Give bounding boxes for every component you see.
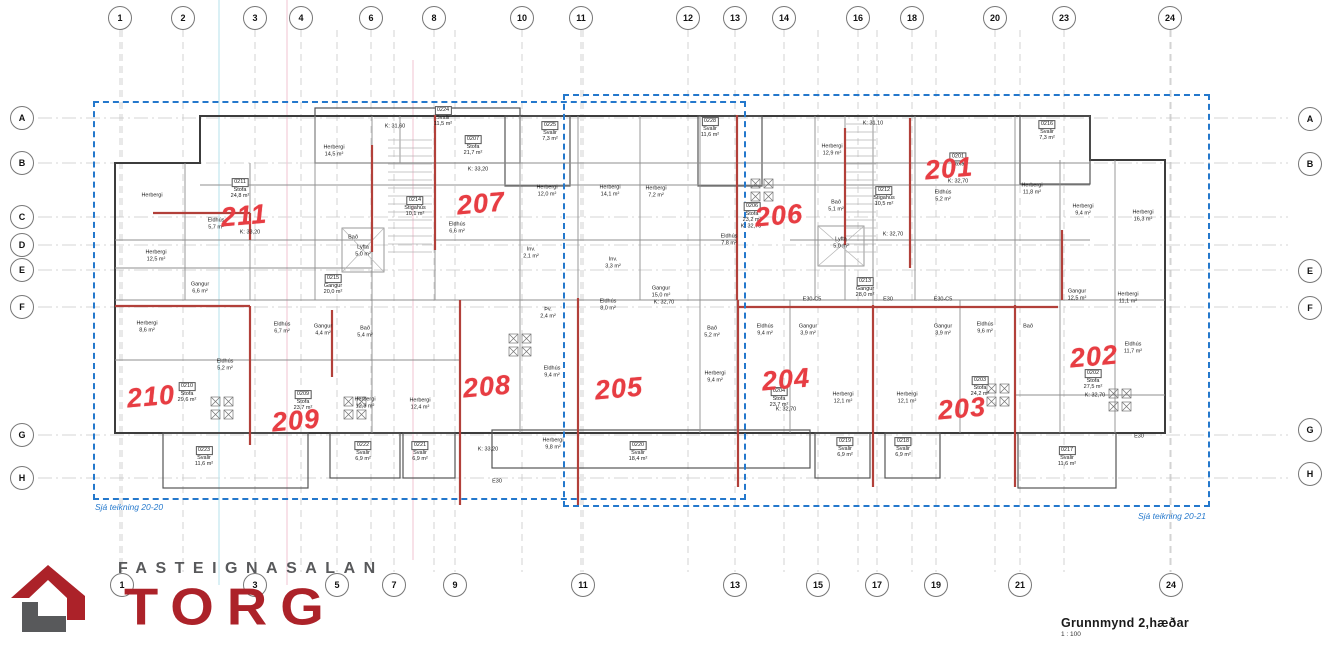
- grid-bubble-left-F: F: [10, 295, 34, 319]
- room-label: Inv.2,1 m²: [523, 246, 539, 259]
- room-label: Eldhús8,0 m²: [600, 298, 617, 311]
- see-drawing-note-right: Sjá teikning 20-21: [1138, 511, 1206, 521]
- unit-number-211: 211: [220, 199, 269, 234]
- grid-bubble-top-13: 13: [723, 6, 747, 30]
- room-label: Herbergi12,4 m²: [409, 397, 430, 410]
- room-label: Lyfta5,0 m²: [355, 244, 371, 257]
- room-label: Eldhús9,4 m²: [757, 323, 774, 336]
- room-label: K: 32,70: [1085, 393, 1106, 400]
- room-label: K: 32,70: [883, 232, 904, 239]
- room-label: Herbergi8,6 m²: [136, 320, 157, 333]
- room-label: K: 32,70: [776, 407, 797, 414]
- grid-bubble-right-H: H: [1298, 462, 1322, 486]
- grid-bubble-top-11: 11: [569, 6, 593, 30]
- room-label: 0220Svalir18,4 m²: [629, 441, 648, 463]
- room-label: Herbergi14,1 m²: [599, 184, 620, 197]
- room-label: Herbergi11,1 m²: [1117, 291, 1138, 304]
- room-label: K: 33,20: [468, 167, 489, 174]
- room-label: E30: [492, 479, 502, 486]
- room-label: Herbergi14,5 m²: [323, 144, 344, 157]
- title-block: Grunnmynd 2,hæðar 1 : 100: [1061, 616, 1189, 638]
- room-label: Eldhús5,2 m²: [935, 189, 952, 202]
- grid-bubble-bottom-9: 9: [443, 573, 467, 597]
- room-label: 0213Gangur28,0 m²: [856, 277, 875, 299]
- grid-bubble-left-H: H: [10, 466, 34, 490]
- room-label: Inv.3,3 m²: [605, 256, 621, 269]
- grid-bubble-top-2: 2: [171, 6, 195, 30]
- room-label: 0210Stofa29,6 m²: [178, 382, 197, 404]
- room-label: E30: [883, 297, 893, 304]
- grid-bubble-top-24: 24: [1158, 6, 1182, 30]
- room-label: Gangur3,9 m²: [934, 323, 952, 336]
- room-label: 0218Svalir6,9 m²: [894, 437, 911, 459]
- unit-number-202: 202: [1069, 339, 1120, 374]
- room-label: Lyfta5,0 m²: [833, 236, 849, 249]
- room-label: 0228Svalir11,6 m²: [701, 117, 719, 139]
- grid-bubble-top-10: 10: [510, 6, 534, 30]
- grid-bubble-left-C: C: [10, 205, 34, 229]
- grid-bubble-bottom-21: 21: [1008, 573, 1032, 597]
- grid-bubble-top-18: 18: [900, 6, 924, 30]
- room-label: 0207Stofa21,7 m²: [464, 135, 483, 157]
- logo-wordmark: TORG: [124, 576, 337, 636]
- room-label: 0215Gangur20,0 m²: [324, 274, 343, 296]
- room-label: Herbergi9,4 m²: [704, 370, 725, 383]
- room-label: 0216Svalir7,3 m²: [1038, 120, 1055, 142]
- room-label: Bað5,1 m²: [828, 199, 844, 212]
- room-label: Eldhús9,6 m²: [977, 321, 994, 334]
- unit-number-210: 210: [126, 379, 177, 414]
- drawing-title: Grunnmynd 2,hæðar: [1061, 616, 1189, 630]
- grid-bubble-right-E: E: [1298, 259, 1322, 283]
- grid-bubble-right-F: F: [1298, 296, 1322, 320]
- room-label: K: 31,10: [863, 121, 884, 128]
- grid-bubble-top-8: 8: [422, 6, 446, 30]
- unit-number-201: 201: [924, 151, 975, 186]
- room-label: K: 32,70: [654, 300, 675, 307]
- room-label: 0225Svalir7,3 m²: [541, 121, 558, 143]
- room-label: 0214Stigahús10,1 m²: [404, 196, 425, 218]
- unit-number-207: 207: [456, 186, 507, 221]
- room-label: Eldhús9,4 m²: [544, 365, 561, 378]
- house-icon: [8, 558, 108, 636]
- grid-bubble-right-A: A: [1298, 107, 1322, 131]
- grid-bubble-bottom-19: 19: [924, 573, 948, 597]
- room-label: Gangur4,4 m²: [314, 323, 332, 336]
- grid-bubble-bottom-15: 15: [806, 573, 830, 597]
- room-label: Herbergi12,1 m²: [896, 391, 917, 404]
- room-label: E30-C5: [934, 297, 953, 304]
- room-label: Herbergi16,3 m²: [1132, 209, 1153, 222]
- room-label: 0217Svalir11,6 m²: [1058, 446, 1076, 468]
- room-label: Herbergi12,5 m²: [145, 249, 166, 262]
- room-label: Gangur6,6 m²: [191, 281, 209, 294]
- unit-number-208: 208: [462, 369, 513, 404]
- room-label: 0224Svalir11,5 m²: [434, 106, 452, 128]
- grid-bubble-left-E: E: [10, 258, 34, 282]
- room-label: Bað: [348, 235, 358, 242]
- grid-bubble-bottom-17: 17: [865, 573, 889, 597]
- room-label: Eldhús7,8 m²: [721, 233, 738, 246]
- room-label: Eldhús6,7 m²: [274, 321, 291, 334]
- grid-bubble-top-12: 12: [676, 6, 700, 30]
- grid-bubble-bottom-13: 13: [723, 573, 747, 597]
- room-label: E30: [1134, 434, 1144, 441]
- floor-plan-sheet: Sjá teikning 20-20 Sjá teikning 20-21 12…: [0, 0, 1326, 648]
- grid-bubble-right-B: B: [1298, 152, 1322, 176]
- grid-bubble-left-G: G: [10, 423, 34, 447]
- grid-bubble-left-D: D: [10, 233, 34, 257]
- room-label: Þv.2,4 m²: [540, 306, 556, 319]
- unit-number-209: 209: [271, 403, 322, 438]
- grid-bubble-bottom-11: 11: [571, 573, 595, 597]
- room-label: 0222Svalir6,9 m²: [354, 441, 371, 463]
- room-label: Bað5,4 m²: [357, 325, 373, 338]
- grid-bubble-top-23: 23: [1052, 6, 1076, 30]
- unit-number-203: 203: [937, 391, 988, 426]
- grid-bubble-top-20: 20: [983, 6, 1007, 30]
- room-label: Bað: [1023, 324, 1033, 331]
- room-label: Bað5,2 m²: [704, 325, 720, 338]
- room-label: Eldhús5,2 m²: [217, 358, 234, 371]
- room-label: Herbergi11,8 m²: [1021, 182, 1042, 195]
- room-label: Herbergi: [141, 193, 162, 200]
- room-label: Herbergi12,1 m²: [832, 391, 853, 404]
- room-label: K: 31,60: [385, 124, 406, 131]
- room-label: K: 33,20: [478, 447, 499, 454]
- grid-bubble-top-4: 4: [289, 6, 313, 30]
- grid-bubble-top-6: 6: [359, 6, 383, 30]
- room-label: 0219Svalir6,9 m²: [836, 437, 853, 459]
- room-label: Herbergi12,3 m²: [354, 396, 375, 409]
- room-label: Herbergi9,8 m²: [542, 437, 563, 450]
- grid-bubble-bottom-24: 24: [1159, 573, 1183, 597]
- grid-bubble-left-B: B: [10, 151, 34, 175]
- grid-bubble-top-16: 16: [846, 6, 870, 30]
- room-label: Herbergi12,9 m²: [821, 143, 842, 156]
- grid-bubble-left-A: A: [10, 106, 34, 130]
- room-label: 0211Stofa24,8 m²: [231, 178, 250, 200]
- see-drawing-note-left: Sjá teikning 20-20: [95, 502, 163, 512]
- grid-bubble-top-1: 1: [108, 6, 132, 30]
- grid-bubble-right-G: G: [1298, 418, 1322, 442]
- unit-number-205: 205: [594, 371, 645, 406]
- room-label: Gangur12,5 m²: [1068, 288, 1087, 301]
- drawing-scale: 1 : 100: [1061, 631, 1189, 638]
- room-label: Eldhús11,7 m²: [1124, 341, 1142, 354]
- room-label: Gangur3,9 m²: [799, 323, 817, 336]
- room-label: Eldhús6,6 m²: [449, 221, 466, 234]
- room-label: E30-C5: [803, 297, 822, 304]
- room-label: 0221Svalir6,9 m²: [411, 441, 428, 463]
- room-label: Herbergi12,0 m²: [536, 184, 557, 197]
- room-label: 0223Svalir11,6 m²: [195, 446, 213, 468]
- room-label: Herbergi7,2 m²: [645, 185, 666, 198]
- room-label: Gangur15,0 m²: [652, 285, 671, 298]
- unit-number-206: 206: [754, 198, 805, 233]
- unit-number-204: 204: [761, 362, 812, 397]
- torg-logo: FASTEIGNASALAN TORG: [8, 552, 408, 644]
- room-label: 0212Stigahús10,5 m²: [873, 186, 894, 208]
- grid-bubble-top-3: 3: [243, 6, 267, 30]
- room-label: Herbergi9,4 m²: [1072, 203, 1093, 216]
- grid-bubble-top-14: 14: [772, 6, 796, 30]
